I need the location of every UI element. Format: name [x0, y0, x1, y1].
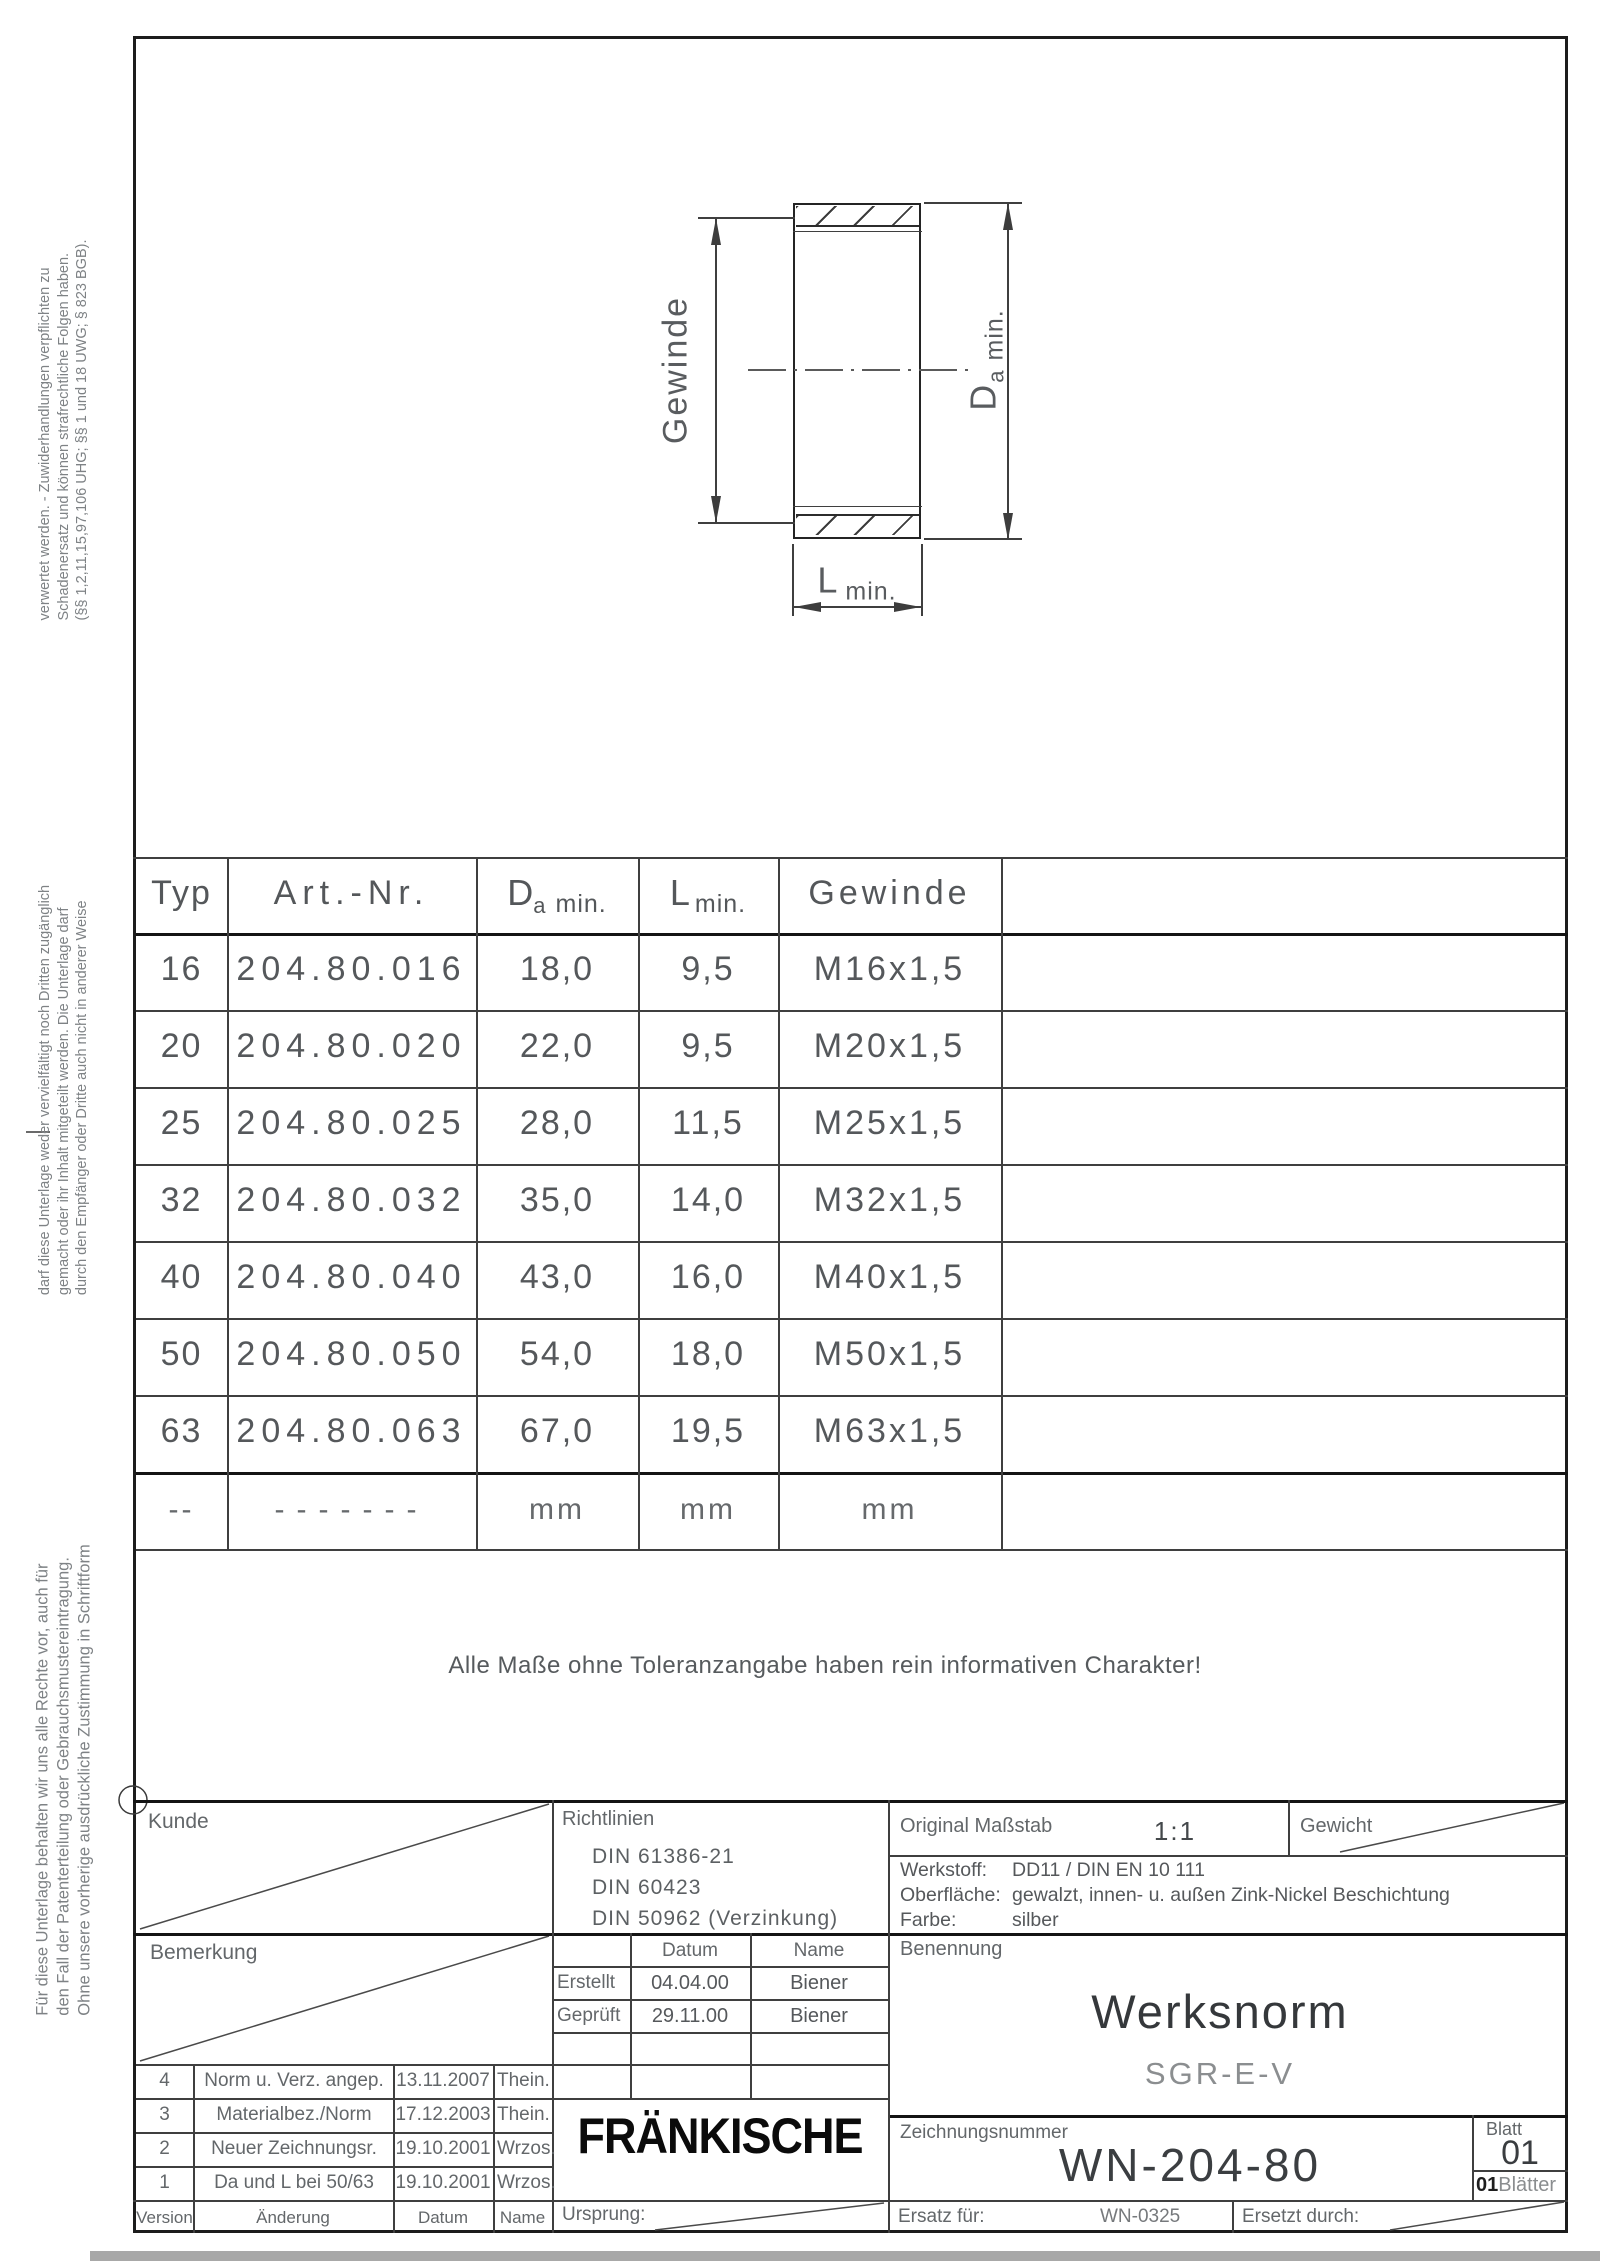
hatch-band-bottom	[796, 514, 919, 535]
richtlinien-label: Richtlinien	[562, 1808, 654, 1831]
revision-date: 19.10.2001	[394, 2138, 492, 2160]
arrow-right-icon	[894, 602, 921, 612]
grid-line	[552, 1999, 888, 2001]
table-cell: M25x1,5	[778, 1104, 1001, 1143]
inner-edge-line	[793, 231, 922, 232]
hatch-band-top	[796, 206, 919, 227]
table-cell: 63	[136, 1412, 227, 1451]
grid-line	[136, 2132, 552, 2134]
margin-note-top: verwertet werden. - Zuwiderhandlungen ve…	[36, 240, 92, 621]
table-cell: M40x1,5	[778, 1258, 1001, 1297]
units-cell: mm	[638, 1493, 778, 1527]
blaetter-count: 01	[1476, 2174, 1498, 2196]
massstab-label: Original Maßstab	[900, 1815, 1052, 1838]
margin-note-bottom: Für diese Unterlage behalten wir uns all…	[32, 1544, 95, 2015]
gewinde-dimension-label: Gewinde	[657, 296, 696, 444]
revision-date: 13.11.2007	[394, 2070, 492, 2092]
units-cell: --	[136, 1493, 227, 1527]
margin-note-line: Für diese Unterlage behalten wir uns all…	[32, 1544, 53, 2015]
table-cell: 14,0	[638, 1181, 778, 1220]
grid-line	[552, 1800, 554, 2233]
bemerkung-label: Bemerkung	[150, 1941, 257, 1965]
benennung-label: Benennung	[900, 1938, 1002, 1961]
grid-line	[1001, 857, 1003, 1549]
approval-datum-header: Datum	[630, 1940, 750, 1962]
footer-aenderung-label: Änderung	[193, 2208, 393, 2228]
werkstoff-label: Werkstoff:	[900, 1859, 1012, 1882]
table-cell: 11,5	[638, 1104, 778, 1143]
grid-line	[136, 933, 1568, 936]
revision-version: 2	[136, 2138, 193, 2160]
grid-line	[136, 2098, 552, 2100]
approval-row-name: Biener	[750, 1972, 888, 1995]
margin-note-line: den Fall der Patenterteilung oder Gebrau…	[53, 1544, 74, 2015]
ersatz-label: Ersatz für:	[898, 2206, 985, 2228]
grid-line	[136, 1395, 1568, 1397]
approval-row-label: Erstellt	[557, 1972, 615, 1994]
grid-line	[552, 2032, 888, 2034]
table-cell: 204.80.050	[227, 1335, 476, 1374]
grid-line	[136, 2166, 552, 2168]
footer-datum-label: Datum	[393, 2208, 493, 2228]
footer-version-label: Version	[136, 2208, 193, 2228]
revision-version: 3	[136, 2104, 193, 2126]
ersatz-value: WN-0325	[1100, 2206, 1180, 2228]
table-cell: 54,0	[476, 1335, 638, 1374]
blaetter-line: 01Blätter	[1476, 2174, 1556, 2197]
inner-edge-line	[793, 506, 922, 507]
margin-note-line: durch den Empfänger oder Dritte auch nic…	[73, 885, 92, 1295]
farbe-label: Farbe:	[900, 1909, 1012, 1932]
table-cell: 28,0	[476, 1104, 638, 1143]
table-cell: 32	[136, 1181, 227, 1220]
margin-note-line: gemacht oder ihr Inhalt mitgeteilt werde…	[55, 885, 74, 1295]
part-cross-section	[793, 203, 921, 539]
table-cell: 9,5	[638, 950, 778, 989]
table-cell: 16,0	[638, 1258, 778, 1297]
arrow-down-icon	[711, 496, 721, 523]
oberflaeche-value: gewalzt, innen- u. außen Zink-Nickel Bes…	[1012, 1884, 1450, 1906]
revision-date: 17.12.2003	[394, 2104, 492, 2126]
table-cell: 50	[136, 1335, 227, 1374]
arrow-up-icon	[1003, 203, 1013, 230]
col-header-typ: Typ	[136, 874, 227, 913]
approval-row-label: Geprüft	[557, 2005, 620, 2027]
tolerance-note: Alle Maße ohne Toleranzangabe haben rein…	[415, 1652, 1235, 1680]
grid-line	[136, 1472, 1568, 1475]
grid-line	[552, 2098, 888, 2100]
table-cell: 204.80.020	[227, 1027, 476, 1066]
margin-note-middle: darf diese Unterlage weder vervielfältig…	[36, 885, 92, 1295]
revision-name: Wrzos.	[497, 2172, 556, 2194]
blaetter-label: Blätter	[1498, 2174, 1556, 2196]
document-subtitle: SGR-E-V	[1000, 2056, 1440, 2092]
table-cell: 67,0	[476, 1412, 638, 1451]
grid-line	[1472, 2115, 1474, 2200]
grid-line	[888, 1855, 1568, 1857]
table-cell: 18,0	[476, 950, 638, 989]
oberflaeche-label: Oberfläche:	[900, 1884, 1012, 1907]
table-cell: 204.80.016	[227, 950, 476, 989]
grid-line	[1472, 2170, 1568, 2172]
table-cell: M20x1,5	[778, 1027, 1001, 1066]
farbe-value: silber	[1012, 1909, 1059, 1931]
table-cell: 204.80.040	[227, 1258, 476, 1297]
revision-version: 4	[136, 2070, 193, 2092]
richtlinie-item: DIN 60423	[592, 1876, 701, 1900]
l-dimension-label: Lmin.	[817, 560, 896, 607]
grid-line	[493, 2064, 495, 2233]
kunde-label: Kunde	[148, 1810, 209, 1834]
revision-change: Materialbez./Norm	[196, 2104, 392, 2126]
grid-line	[1232, 2200, 1234, 2233]
grid-line	[136, 1241, 1568, 1243]
grid-line	[136, 1010, 1568, 1012]
revision-name: Thein.	[497, 2070, 550, 2092]
grid-line	[1288, 1800, 1290, 1855]
blatt-value: 01	[1472, 2134, 1568, 2173]
table-cell: 40	[136, 1258, 227, 1297]
arrow-down-icon	[1003, 513, 1013, 540]
approval-row-datum: 29.11.00	[630, 2005, 750, 2028]
table-cell: 204.80.025	[227, 1104, 476, 1143]
units-cell: mm	[476, 1493, 638, 1527]
grid-line	[136, 2064, 888, 2066]
footer-name-label: Name	[493, 2208, 552, 2228]
margin-note-line: verwertet werden. - Zuwiderhandlungen ve…	[36, 240, 55, 621]
richtlinie-item: DIN 50962 (Verzinkung)	[592, 1907, 838, 1931]
grid-line	[136, 1087, 1568, 1089]
revision-change: Norm u. Verz. angep.	[196, 2070, 392, 2092]
table-cell: 204.80.063	[227, 1412, 476, 1451]
document-title: Werksnorm	[1000, 1984, 1440, 2039]
fraenkische-logo: FRÄNKISCHE	[556, 2107, 884, 2165]
approval-name-header: Name	[750, 1940, 888, 1962]
grid-line	[133, 857, 1568, 859]
drawing-sheet: Gewinde Damin. Lmin. Typ Art.-Nr. Damin.…	[0, 0, 1600, 2264]
gewicht-label: Gewicht	[1300, 1815, 1372, 1838]
table-cell: M50x1,5	[778, 1335, 1001, 1374]
units-cell: mm	[778, 1493, 1001, 1527]
material-block: Werkstoff:DD11 / DIN EN 10 111 Oberfläch…	[900, 1859, 1450, 1934]
ursprung-label: Ursprung:	[562, 2204, 645, 2226]
table-cell: 19,5	[638, 1412, 778, 1451]
margin-note-line: (§§ 1,2,11,15,97,106 UHG; §§ 1 und 18 UW…	[73, 240, 92, 621]
table-cell: 22,0	[476, 1027, 638, 1066]
col-header-artnr: Art.-Nr.	[227, 874, 476, 913]
table-cell: 16	[136, 950, 227, 989]
margin-note-line: darf diese Unterlage weder vervielfältig…	[36, 885, 55, 1295]
table-cell: M32x1,5	[778, 1181, 1001, 1220]
col-header-l: Lmin.	[638, 872, 778, 919]
centerline	[748, 369, 968, 371]
revision-version: 1	[136, 2172, 193, 2194]
arrow-up-icon	[711, 218, 721, 245]
revision-name: Thein.	[497, 2104, 550, 2126]
revision-change: Da und L bei 50/63	[196, 2172, 392, 2194]
revision-change: Neuer Zeichnungsr.	[196, 2138, 392, 2160]
massstab-value: 1:1	[1110, 1816, 1240, 1847]
grid-line	[888, 1800, 890, 2233]
grid-line	[133, 1933, 1568, 1936]
grid-line	[133, 1800, 1568, 1803]
revision-name: Wrzos.	[497, 2138, 556, 2160]
richtlinie-item: DIN 61386-21	[592, 1845, 735, 1869]
table-cell: M63x1,5	[778, 1412, 1001, 1451]
ersetzt-label: Ersetzt durch:	[1242, 2206, 1359, 2228]
table-cell: 25	[136, 1104, 227, 1143]
margin-note-line: Schadenersatz und können strafrechtliche…	[55, 240, 74, 621]
grid-line	[193, 2064, 195, 2233]
margin-note-line: Ohne unsere vorherige ausdrückliche Zust…	[75, 1544, 96, 2015]
col-header-da: Damin.	[476, 872, 638, 919]
grid-line	[133, 2200, 1568, 2202]
table-cell: 35,0	[476, 1181, 638, 1220]
revision-date: 19.10.2001	[394, 2172, 492, 2194]
approval-row-datum: 04.04.00	[630, 1972, 750, 1995]
scan-shadow-strip	[90, 2251, 1600, 2261]
approval-row-name: Biener	[750, 2005, 888, 2028]
drawing-number: WN-204-80	[960, 2138, 1420, 2192]
dimension-line	[715, 218, 717, 523]
table-cell: 9,5	[638, 1027, 778, 1066]
units-cell: -------	[227, 1493, 476, 1527]
grid-line	[552, 1966, 888, 1968]
table-cell: 18,0	[638, 1335, 778, 1374]
werkstoff-value: DD11 / DIN EN 10 111	[1012, 1859, 1205, 1881]
grid-line	[136, 1549, 1568, 1551]
da-dimension-label: Damin.	[963, 309, 1010, 410]
grid-line	[136, 1164, 1568, 1166]
table-cell: M16x1,5	[778, 950, 1001, 989]
table-cell: 20	[136, 1027, 227, 1066]
grid-line	[888, 2115, 1568, 2118]
table-cell: 43,0	[476, 1258, 638, 1297]
col-header-gewinde: Gewinde	[778, 874, 1001, 913]
grid-line	[136, 1318, 1568, 1320]
table-cell: 204.80.032	[227, 1181, 476, 1220]
